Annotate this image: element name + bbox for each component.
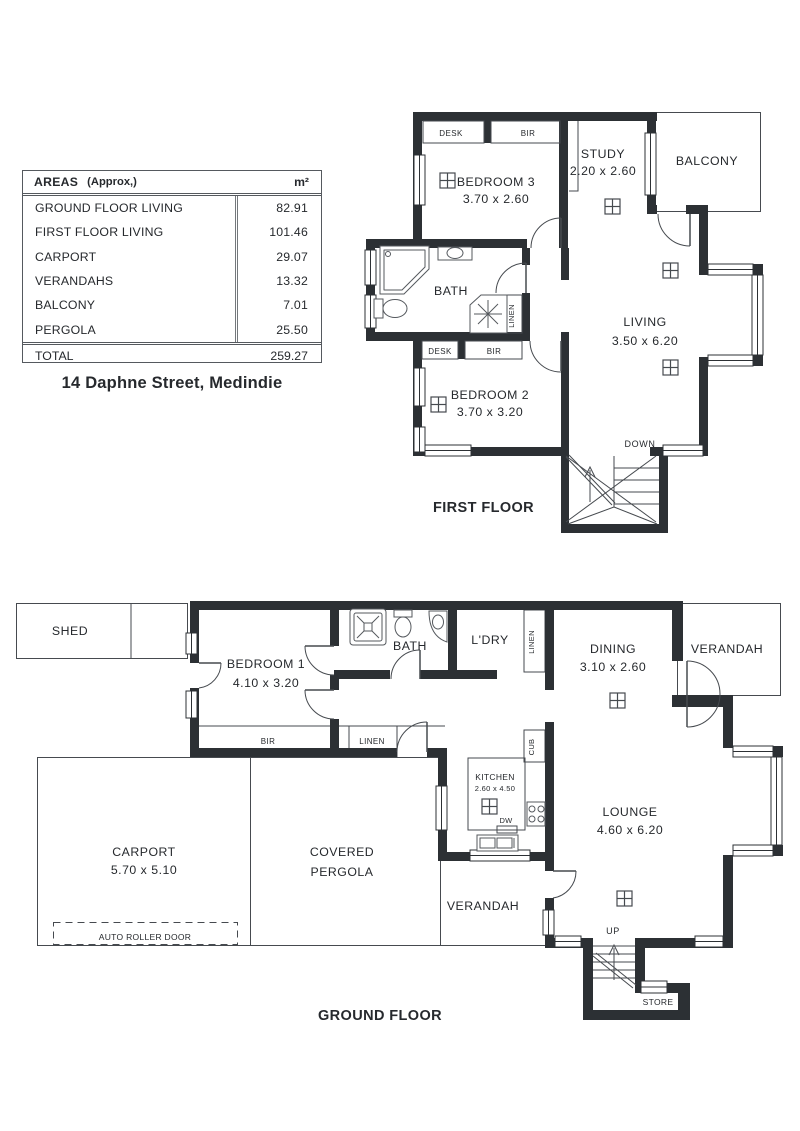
light-icon [482,799,497,814]
label-linen-upper: LINEN [527,630,536,654]
bedroom1-entry-door [199,663,221,688]
label-study-dims: 2.20 x 2.60 [570,164,636,178]
label-bedroom1: BEDROOM 1 [227,657,305,671]
light-icon [617,891,632,906]
label-roller-door: AUTO ROLLER DOOR [99,932,192,942]
verandah-double-door [687,661,720,727]
label-shed: SHED [52,624,88,638]
floorplans-canvas: DESK BIR BEDROOM 3 3.70 x 2.60 STUDY 2.2… [0,0,800,1131]
ground-floor-labels: SHED BEDROOM 1 4.10 x 3.20 BATH L'DRY LI… [52,624,763,1007]
walls [366,112,763,533]
label-cub: CUB [527,739,536,756]
label-bedroom2: BEDROOM 2 [451,388,529,402]
label-bath-gf: BATH [393,639,427,653]
light-icon [440,173,455,188]
label-bedroom3-dims: 3.70 x 2.60 [463,192,529,206]
shower [470,295,507,333]
cooktop [527,802,545,826]
bathroom-door [496,263,526,293]
light-icon [605,199,620,214]
bedroom1-hall-door-upper [305,646,334,675]
label-verandah-lower: VERANDAH [447,899,519,913]
label-pergola-2: PERGOLA [311,865,374,879]
basin [429,611,447,642]
label-balcony: BALCONY [676,154,738,168]
label-bath-ff: BATH [434,284,468,298]
label-bir-bed3: BIR [521,129,536,138]
toilet [374,299,407,318]
first-floor-plan: DESK BIR BEDROOM 3 3.70 x 2.60 STUDY 2.2… [365,112,763,533]
shed-outline [17,604,188,659]
label-dw: DW [499,816,513,825]
stairs-down [566,455,659,524]
label-bedroom1-dims: 4.10 x 3.20 [233,676,299,690]
label-kitchen-dims: 2.60 x 4.50 [475,784,515,793]
label-dining-dims: 3.10 x 2.60 [580,660,646,674]
label-living: LIVING [623,315,666,329]
bedroom2-door [530,341,561,372]
balcony-door [658,214,690,246]
light-icon [431,397,446,412]
label-down: DOWN [625,439,656,449]
label-kitchen: KITCHEN [475,772,514,782]
label-store: STORE [643,997,674,1007]
light-icon [663,263,678,278]
corner-bath [380,246,429,294]
label-ldry: L'DRY [471,633,508,647]
label-carport-dims: 5.70 x 5.10 [111,863,177,877]
label-verandah-upper: VERANDAH [691,642,763,656]
kitchen-bench [468,758,525,830]
double-sink [477,835,518,851]
bedroom3-door [531,218,561,248]
bedroom1-hall-door-lower [305,690,334,719]
label-pergola-1: COVERED [310,845,374,859]
label-study: STUDY [581,147,625,161]
floorplan-page: AREAS (Approx,) m² GROUND FLOOR LIVING 8… [0,0,800,1131]
label-bir-gf: BIR [261,737,276,746]
bathroom-door [391,650,420,679]
outdoor-outlines [17,604,781,946]
label-carport: CARPORT [112,845,175,859]
label-desk-bed2: DESK [428,347,452,356]
label-living-dims: 3.50 x 6.20 [612,334,678,348]
label-lounge-dims: 4.60 x 6.20 [597,823,663,837]
study-nib-line [569,121,578,191]
ground-floor-plan: SHED BEDROOM 1 4.10 x 3.20 BATH L'DRY LI… [17,601,784,1020]
light-icon [663,360,678,375]
label-bedroom2-dims: 3.70 x 3.20 [457,405,523,419]
label-linen-ff: LINEN [507,304,516,328]
label-lounge: LOUNGE [603,805,658,819]
vanity-basin [438,247,472,260]
label-linen-lower: LINEN [359,737,385,746]
light-icons [431,173,678,412]
light-icon [610,693,625,708]
light-icons [482,693,632,906]
label-bedroom3: BEDROOM 3 [457,175,535,189]
stairs-up [593,945,636,988]
label-dining: DINING [590,642,636,656]
first-floor-labels: DESK BIR BEDROOM 3 3.70 x 2.60 STUDY 2.2… [428,129,738,449]
shower [350,609,386,645]
label-desk-bed3: DESK [439,129,463,138]
toilet [394,610,412,637]
label-up: UP [606,926,620,936]
lounge-verandah-door [553,871,576,898]
label-bir-bed2: BIR [487,347,502,356]
